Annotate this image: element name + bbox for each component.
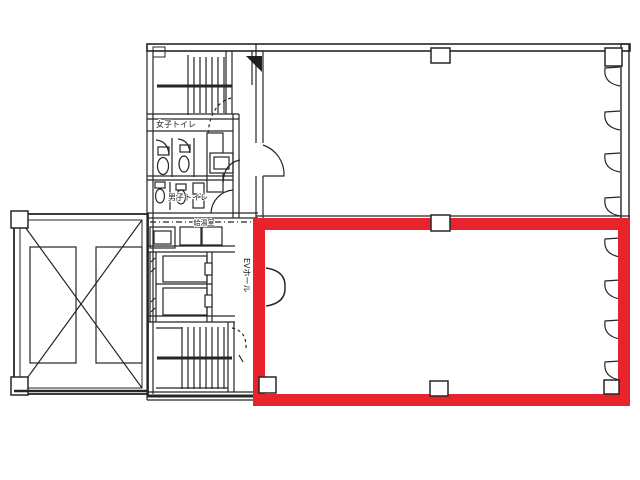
right-exterior-wall-upper: [621, 44, 629, 220]
toilet-bowl: [179, 156, 189, 172]
top-exterior-wall: [147, 44, 630, 51]
ev-hall-label: EVホール: [242, 258, 251, 293]
window-symbol: [605, 111, 620, 130]
stair-hook: [153, 47, 165, 57]
womens-toilet: [147, 131, 233, 192]
floorplan-drawing: 女子トイレ 男子トイレ 給湯室 EVホール: [0, 0, 640, 480]
shaft-bay-left: [30, 247, 76, 363]
elevator-door: [205, 295, 212, 307]
ev-hall-double-door: [266, 268, 285, 287]
window-symbol: [605, 238, 620, 257]
highlight-rectangle: [259, 224, 624, 400]
stairwell-lower: [156, 322, 246, 392]
window-symbol: [605, 320, 620, 339]
window-symbol: [605, 361, 620, 380]
window-symbol: [605, 197, 620, 216]
door-swing-arc: [211, 190, 233, 213]
kitchenette-label: 給湯室: [194, 218, 215, 227]
lower-office-room: [605, 238, 620, 380]
columns-over-highlight: [259, 215, 619, 396]
upper-office-room: [263, 48, 622, 216]
toilet-tank: [155, 182, 165, 188]
column: [431, 215, 450, 231]
corner-column: [11, 377, 28, 395]
door-swing-arc: [263, 145, 284, 176]
elevator-cab: [163, 288, 207, 315]
floorplan-image: 女子トイレ 男子トイレ 給湯室 EVホール: [0, 0, 640, 480]
elevator-core: [147, 252, 235, 322]
elevator-door: [205, 263, 212, 275]
column: [604, 380, 619, 394]
toilet-bowl: [158, 158, 169, 175]
column: [605, 48, 622, 66]
mens-toilet-label: 男子トイレ: [168, 193, 208, 202]
urinal: [156, 189, 165, 203]
ev-hall-double-door: [266, 287, 285, 306]
elevator-cab: [163, 256, 207, 282]
column: [259, 377, 276, 393]
toilet-tank: [176, 184, 186, 190]
counter-unit: [180, 227, 201, 245]
column: [430, 381, 448, 396]
window-symbol: [605, 153, 620, 172]
column: [431, 48, 450, 63]
window-symbol: [605, 280, 620, 299]
mens-toilet: [147, 114, 258, 218]
window-symbol: [605, 67, 620, 86]
shaft-bay-right: [96, 247, 142, 363]
stair-corner-mark: [246, 56, 262, 72]
womens-toilet-label: 女子トイレ: [156, 119, 196, 129]
corner-column: [11, 211, 28, 228]
left-wing: [11, 211, 148, 395]
sink-basin: [154, 231, 171, 244]
counter-unit: [202, 227, 222, 245]
